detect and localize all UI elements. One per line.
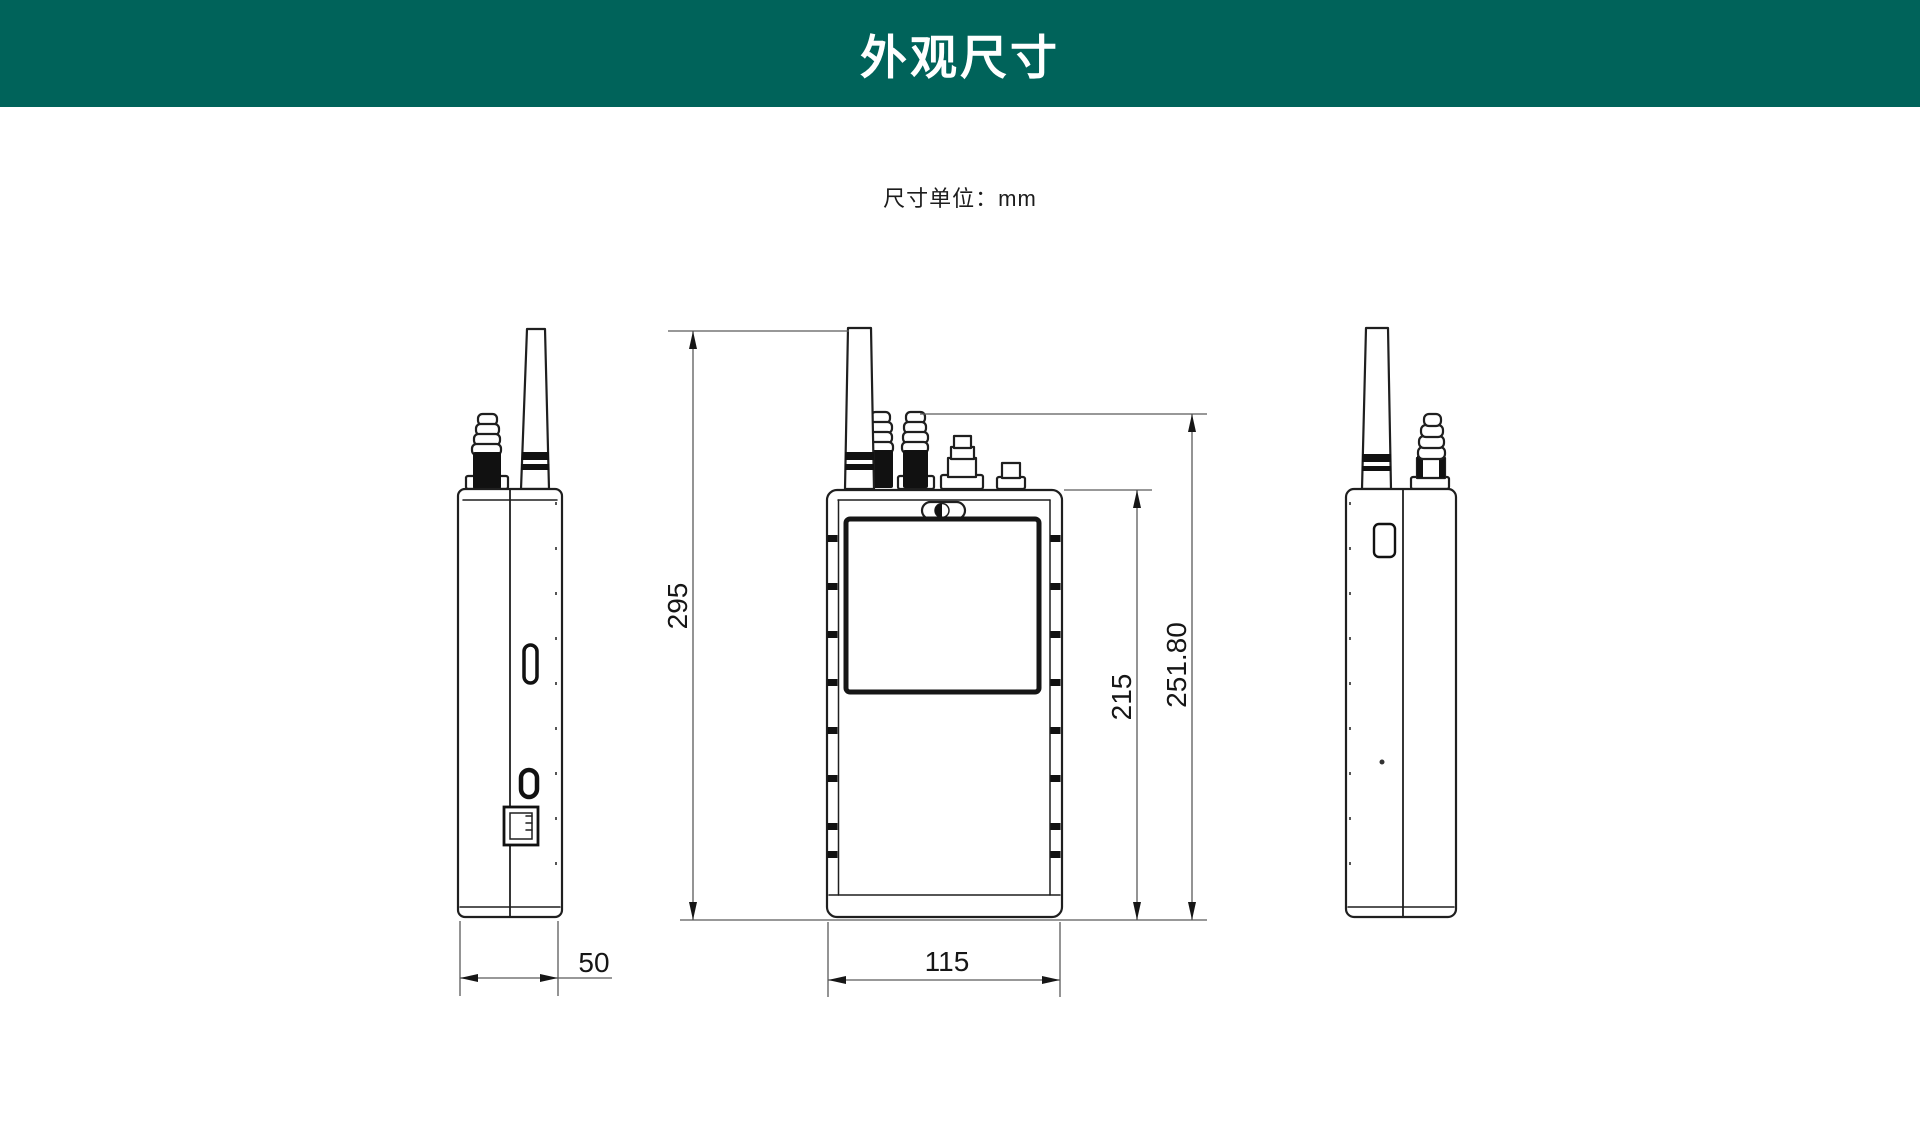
screen: [846, 519, 1039, 692]
dim-label-depth: 50: [578, 947, 609, 978]
antenna: [521, 329, 550, 489]
dimension-drawing: 50: [0, 0, 1920, 1140]
antenna: [1362, 328, 1391, 489]
hose-connector: [466, 414, 508, 489]
device-body: [458, 489, 562, 917]
small-connector: [997, 463, 1025, 489]
dim-label-height-with-connector: 251.80: [1161, 622, 1192, 708]
ethernet-port: [504, 807, 538, 845]
device-body: [827, 490, 1062, 917]
right-side-view: [1346, 328, 1456, 917]
device-body: [1346, 489, 1456, 917]
camera-window: [922, 502, 965, 519]
pinhole: [1380, 760, 1385, 765]
antenna: [845, 328, 874, 489]
dim-label-body-height: 215: [1106, 674, 1137, 721]
usb-port: [521, 770, 537, 797]
dimension-depth: 50: [460, 921, 612, 996]
hose-connector-2: [898, 412, 934, 489]
front-view: 295 115 215 251.80: [662, 328, 1207, 997]
hose-connector: [1411, 414, 1449, 489]
dim-label-overall-height: 295: [662, 583, 693, 630]
dimension-width: 115: [828, 922, 1060, 997]
dimension-body-height: 215: [1064, 490, 1152, 920]
stepped-connector: [941, 436, 983, 489]
sim-slot: [524, 645, 537, 683]
left-side-view: 50: [458, 329, 612, 996]
dim-label-width: 115: [925, 946, 970, 977]
side-button: [1374, 524, 1395, 557]
